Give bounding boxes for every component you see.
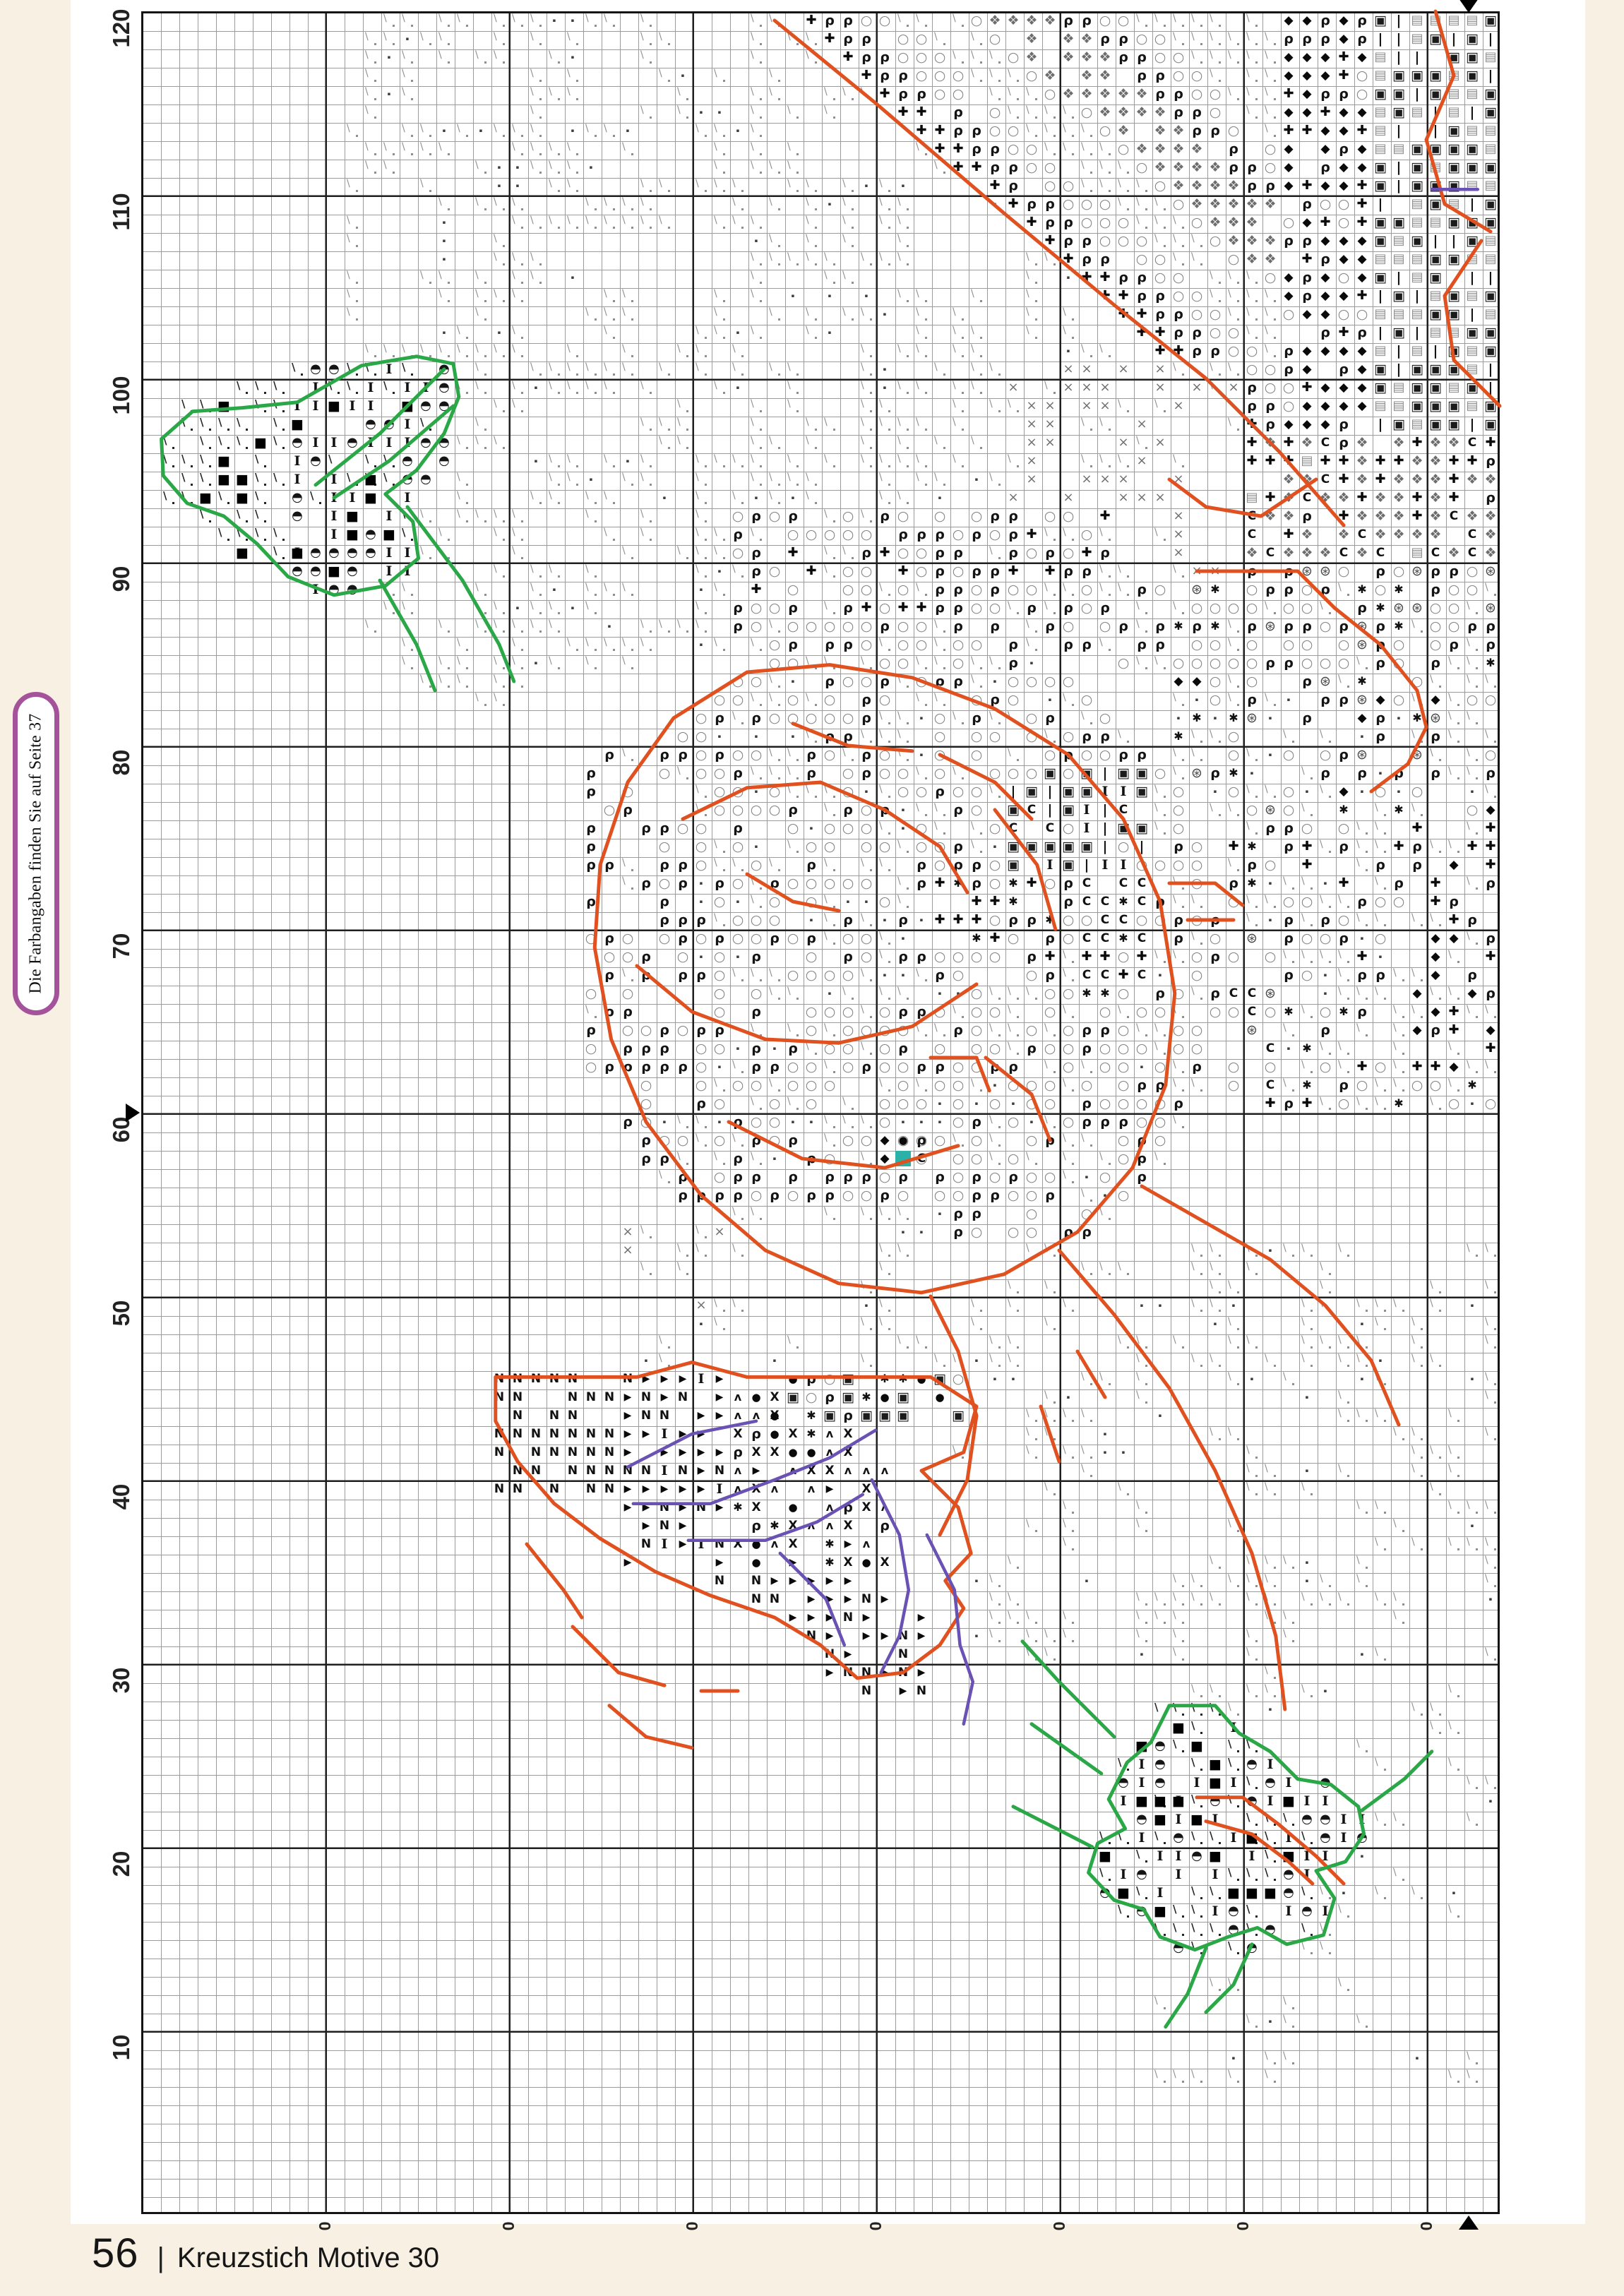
backstitch-orange xyxy=(747,874,839,911)
backstitch-orange xyxy=(1169,883,1243,905)
backstitch-orange xyxy=(995,810,1056,929)
page-number: 56 xyxy=(92,2230,139,2277)
backstitch-orange xyxy=(940,755,1032,819)
backstitch-orange xyxy=(527,1544,582,1618)
backstitch-orange xyxy=(729,1122,958,1168)
backstitch-orange xyxy=(609,1706,692,1748)
marker-top-arrow-icon xyxy=(1459,0,1479,13)
backstitch-orange xyxy=(986,1058,1050,1140)
backstitch-green xyxy=(1013,1807,1092,1847)
backstitch-orange xyxy=(683,782,885,819)
backstitch-green xyxy=(1166,1948,1206,2027)
backstitch-green xyxy=(1032,1724,1101,1774)
backstitch-orange xyxy=(839,984,977,1043)
backstitch-orange xyxy=(496,1363,977,1678)
backstitch-purple xyxy=(628,1421,756,1467)
backstitch-green xyxy=(1022,1642,1114,1737)
backstitch-lines-layer xyxy=(0,0,1624,2296)
backstitch-orange xyxy=(573,1627,664,1685)
backstitch-orange xyxy=(1077,1351,1105,1397)
backstitch-purple xyxy=(872,1480,909,1673)
footer-separator: | xyxy=(157,2242,165,2274)
marker-bottom-arrow-icon xyxy=(1459,2216,1479,2230)
scanned-pattern-page: { "page": { "background": "#f8f0e2", "pa… xyxy=(0,0,1624,2296)
backstitch-orange xyxy=(775,20,1344,525)
backstitch-green xyxy=(380,580,435,690)
backstitch-orange xyxy=(931,1296,977,1535)
backstitch-orange xyxy=(1041,1406,1059,1461)
backstitch-green xyxy=(162,357,459,595)
backstitch-orange xyxy=(931,1058,989,1091)
backstitch-orange xyxy=(1059,1250,1285,1709)
backstitch-orange xyxy=(1197,571,1426,791)
backstitch-orange xyxy=(1142,1186,1399,1425)
book-title: Kreuzstich Motive 30 xyxy=(177,2242,439,2274)
backstitch-orange xyxy=(595,665,1175,1293)
backstitch-orange xyxy=(793,724,912,751)
backstitch-orange xyxy=(1426,11,1491,232)
backstitch-green xyxy=(1206,1944,1252,2012)
backstitch-orange xyxy=(637,966,839,1043)
backstitch-orange xyxy=(1206,1822,1313,1884)
backstitch-purple xyxy=(633,1430,876,1504)
backstitch-purple xyxy=(780,1553,844,1645)
marker-left-arrow-icon xyxy=(126,1104,140,1122)
backstitch-orange xyxy=(885,810,967,892)
backstitch-green xyxy=(1362,1752,1432,1810)
page-footer: 56 | Kreuzstich Motive 30 xyxy=(92,2230,439,2277)
backstitch-orange xyxy=(1445,241,1500,406)
backstitch-orange xyxy=(1169,479,1316,516)
backstitch-green xyxy=(407,507,514,681)
